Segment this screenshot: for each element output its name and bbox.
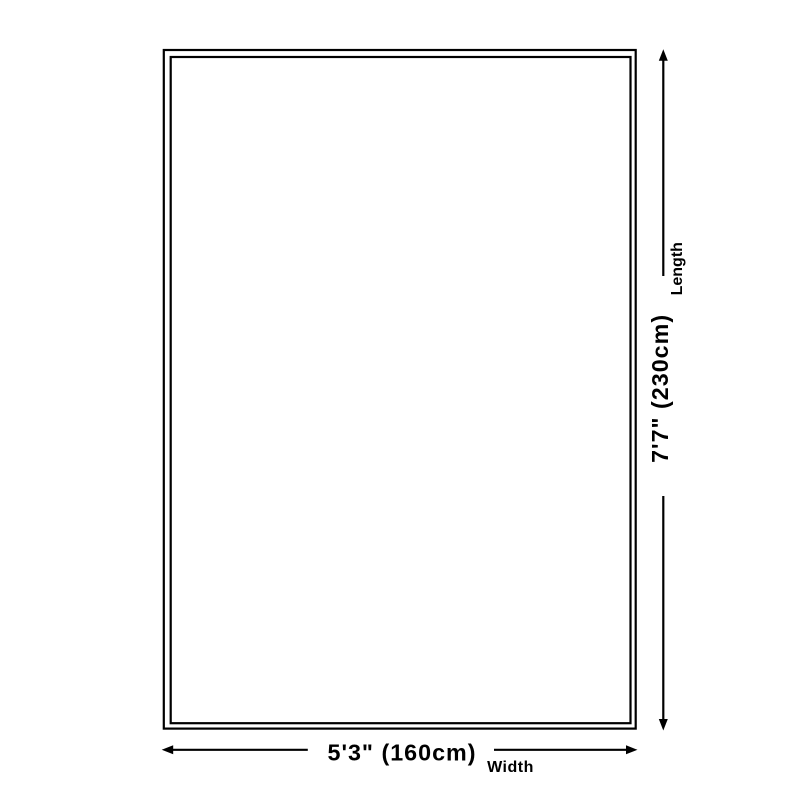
svg-text:7'7" (230cm): 7'7" (230cm) bbox=[647, 314, 673, 463]
svg-text:Width: Width bbox=[487, 759, 534, 776]
svg-text:5'3" (160cm): 5'3" (160cm) bbox=[327, 739, 476, 765]
svg-text:Length: Length bbox=[669, 242, 686, 295]
